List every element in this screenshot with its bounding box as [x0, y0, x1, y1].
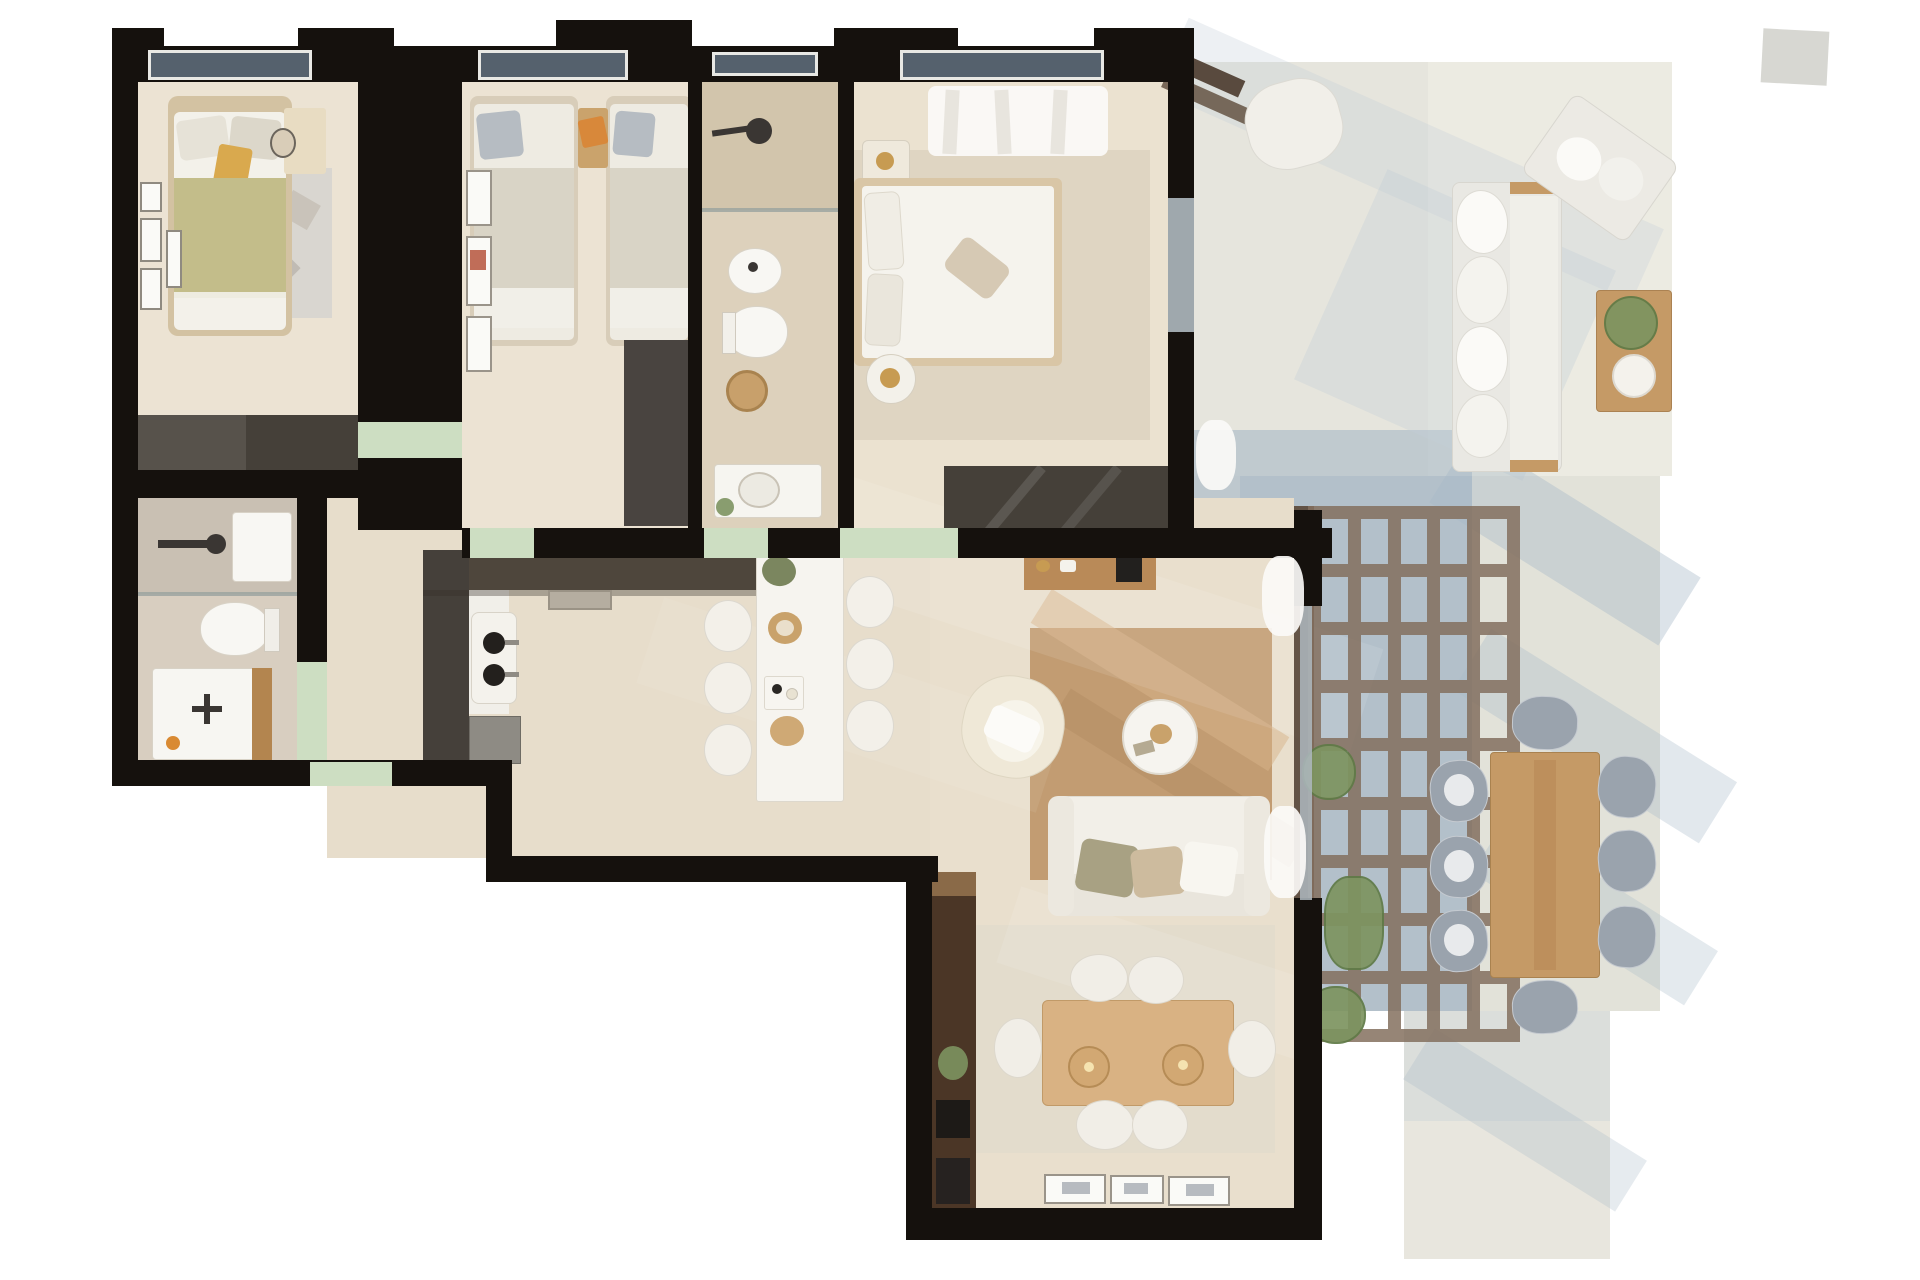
island-stool-right-2 [846, 638, 894, 690]
living-sideboard-espresso [1116, 558, 1142, 582]
island-stool-left-2 [704, 662, 752, 714]
kitchen-appliance [469, 716, 521, 764]
bed1-blanket-fold [174, 292, 286, 324]
wall-bottom-mid [486, 856, 938, 882]
master-lamp-bottom [880, 368, 900, 388]
window-master [900, 50, 1104, 80]
dining-pendant-1-bulb [1084, 1062, 1094, 1072]
bed2-wardrobe [624, 340, 690, 526]
kitchen-vent-grille [548, 590, 612, 610]
island-bowl-2 [770, 716, 804, 746]
bath2-shower-head [206, 534, 226, 554]
floor-plan-stage [0, 0, 1920, 1280]
master-pillow-a [863, 191, 904, 271]
bath1-stool [726, 370, 768, 412]
pergola-beam-horizontal [1308, 680, 1520, 693]
kitchen-counter-left-run [423, 550, 469, 764]
pergola-beam-horizontal [1308, 506, 1520, 519]
bed2-poster-red-chip [470, 250, 486, 270]
bath1-vanity-basin [738, 472, 780, 508]
wall-pier-5 [1094, 28, 1194, 48]
living-sideboard-white-item [1060, 560, 1076, 572]
wall-divider-bed1-bed2 [358, 46, 462, 422]
bed2-nightstand-box [577, 116, 608, 149]
window-bedroom-2 [478, 50, 628, 80]
door-bedroom-2 [470, 528, 534, 558]
bath2-faucet-v [204, 694, 210, 724]
bath1-shower-zone [702, 80, 838, 210]
living-sofa-pillow-white [1179, 840, 1239, 897]
door-bedroom-1 [358, 422, 462, 458]
outdoor-sofa-seat [1510, 196, 1558, 460]
bed2-bedA-pillow [476, 110, 525, 160]
wall-left [112, 46, 138, 786]
dining-frame-art-2-sketch [1124, 1183, 1148, 1194]
living-sofa-pillow-beige [1130, 845, 1187, 898]
island-stool-left-3 [704, 724, 752, 776]
living-coffee-decor [1150, 724, 1172, 744]
dining-chair-top-1 [1070, 954, 1128, 1002]
door-bathroom-1 [704, 528, 768, 558]
master-lamp-top [876, 152, 894, 170]
wall-bed1-bottom [112, 470, 360, 498]
wall-dining-right [1294, 898, 1322, 1240]
door-entry-mat [310, 762, 392, 786]
bed1-wall-frame-b [140, 218, 162, 262]
bed2-poster-b [466, 236, 492, 306]
pergola-beam-vertical [1388, 506, 1401, 1042]
island-stool-right-3 [846, 700, 894, 752]
bath2-glass-line [134, 592, 299, 596]
master-pillow-b [864, 273, 904, 347]
curtain-master-terrace [1196, 420, 1236, 490]
dining-chair-right [1228, 1020, 1276, 1078]
wall-bath1-right [838, 46, 854, 528]
dining-chair-bottom-2 [1132, 1100, 1188, 1150]
bed1-wall-frame-c [166, 230, 182, 288]
bath1-bidet-dot [748, 262, 758, 272]
dining-chair-left [994, 1018, 1042, 1078]
bed1-wall-frame-a [140, 182, 162, 212]
wall-pier-1 [112, 28, 164, 48]
dining-chair-bottom-1 [1076, 1100, 1134, 1150]
bath2-toilet-tank [264, 608, 280, 652]
outdoor-sofa-wood-bottom [1510, 460, 1558, 472]
dining-frame-art-3-sketch [1186, 1184, 1214, 1196]
island-tray-dot [772, 684, 782, 694]
bed2-poster-a [466, 170, 492, 226]
island-stool-left-1 [704, 600, 752, 652]
wall-pier-3 [556, 20, 692, 48]
wall-dining-left [906, 872, 932, 1234]
outdoor-dining-runner [1534, 760, 1556, 970]
bed1-desk-chair [270, 128, 296, 158]
wall-divider-low [358, 458, 462, 530]
bath1-glass-line [702, 208, 838, 212]
dining-shelf-plant [938, 1046, 968, 1080]
pergola-beam-horizontal [1308, 564, 1520, 577]
wall-pier-4 [834, 28, 958, 48]
living-sofa-arm-left [1048, 796, 1074, 916]
bed1-blanket-olive [174, 178, 286, 298]
dining-shelf-books [936, 1100, 970, 1138]
outdoor-side-table-tray [1612, 354, 1656, 398]
terrace-plant-2 [1324, 876, 1384, 970]
bed1-wardrobe-right [246, 415, 358, 472]
pergola-beam-horizontal [1308, 622, 1520, 635]
island-tray [764, 676, 804, 710]
island-stool-right-1 [846, 576, 894, 628]
kitchen-burner-2 [483, 664, 505, 686]
bath2-toilet [200, 602, 270, 656]
door-master-bedroom [840, 528, 958, 558]
bath1-toilet-tank [722, 312, 736, 354]
bed2-bedB-fold [610, 288, 688, 328]
wall-bath2-right [297, 498, 327, 662]
bed2-bedB-blanket [610, 168, 688, 290]
dining-frame-art-1-sketch [1062, 1182, 1090, 1194]
island-tray-cup [786, 688, 798, 700]
bed1-wardrobe-left [134, 415, 246, 472]
dining-chair-top-2 [1128, 956, 1184, 1004]
dining-table [1042, 1000, 1234, 1106]
door-bathroom-2 [297, 662, 327, 760]
pergola-beam-horizontal [1308, 971, 1520, 984]
bed1-wall-frame-d [140, 268, 162, 310]
pergola-beam-horizontal [1308, 797, 1520, 810]
bath2-knob-orange [166, 736, 180, 750]
living-sofa-pillow-olive [1074, 837, 1140, 898]
outdoor-side-table-plant [1604, 296, 1658, 350]
bath2-cistern-unit [232, 512, 292, 582]
curtain-living-door-1 [1262, 556, 1304, 636]
bath2-vanity-wood-side [252, 668, 272, 760]
kitchen-pot-handle-2 [505, 672, 519, 677]
island-bowl-1-inner [776, 620, 794, 636]
master-wardrobe [944, 466, 1170, 528]
living-sideboard-gold-item [1036, 560, 1050, 572]
window-bedroom-1 [148, 50, 312, 80]
dining-shelf-boxes [936, 1158, 970, 1204]
kitchen-pot-handle-1 [505, 640, 519, 645]
neighbor-block-topright [1761, 28, 1830, 85]
outdoor-chair-head-top [1511, 695, 1579, 751]
glass-master-terrace-door [1168, 198, 1194, 332]
curtain-living-door-2 [1264, 806, 1306, 898]
wall-pier-2 [298, 28, 394, 48]
window-bathroom-1 [712, 52, 818, 76]
wall-bath1-left [688, 46, 702, 528]
bath1-vanity-plant [716, 498, 734, 516]
wall-dining-bottom [906, 1208, 1322, 1240]
dining-pendant-2-bulb [1178, 1060, 1188, 1070]
kitchen-cooktop-tray [471, 612, 517, 704]
bed2-poster-c [466, 316, 492, 372]
kitchen-burner-1 [483, 632, 505, 654]
bed2-bedB-pillow [612, 110, 656, 157]
